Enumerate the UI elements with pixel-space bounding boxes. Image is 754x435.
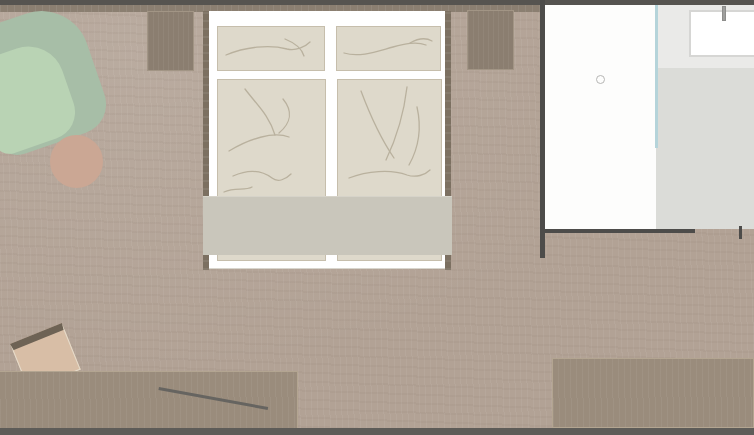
nightstand-left [147, 11, 194, 71]
wall-interior-vertical [540, 0, 545, 258]
nightstand-right [467, 10, 514, 70]
double-bed [203, 11, 451, 271]
desk [0, 371, 298, 428]
floor-plan [0, 0, 754, 435]
faucet-icon [722, 6, 726, 21]
glass-partition [655, 4, 658, 148]
sideboard [552, 358, 754, 428]
door-jamb [739, 226, 743, 239]
pillow-wrinkle-lines [217, 26, 325, 71]
bathroom-floor-lower [656, 68, 754, 229]
pillow-right [336, 26, 441, 71]
round-side-table [50, 135, 103, 188]
wall-interior-horizontal [540, 229, 695, 233]
ceiling-light-icon [596, 75, 605, 84]
pillow-wrinkle-lines [336, 26, 441, 71]
bed-foot-bench [203, 196, 452, 255]
wall-bottom [0, 428, 754, 435]
door-swing-area [544, 4, 656, 229]
pillow-left [217, 26, 325, 71]
